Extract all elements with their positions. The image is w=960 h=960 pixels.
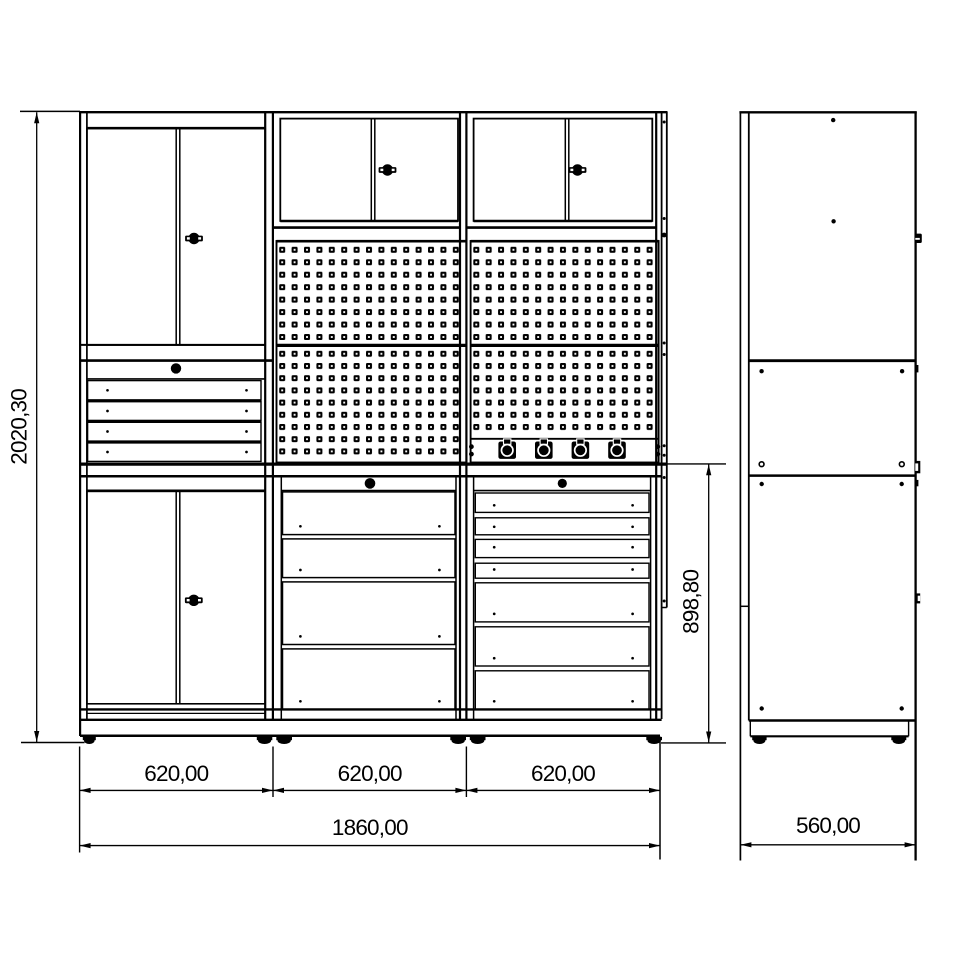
svg-text:620,00: 620,00 [338, 761, 402, 786]
svg-text:620,00: 620,00 [144, 761, 208, 786]
svg-text:1860,00: 1860,00 [332, 815, 408, 840]
svg-text:898,80: 898,80 [679, 570, 704, 634]
svg-text:2020,30: 2020,30 [6, 389, 31, 465]
svg-text:620,00: 620,00 [531, 761, 595, 786]
svg-text:560,00: 560,00 [796, 813, 860, 838]
